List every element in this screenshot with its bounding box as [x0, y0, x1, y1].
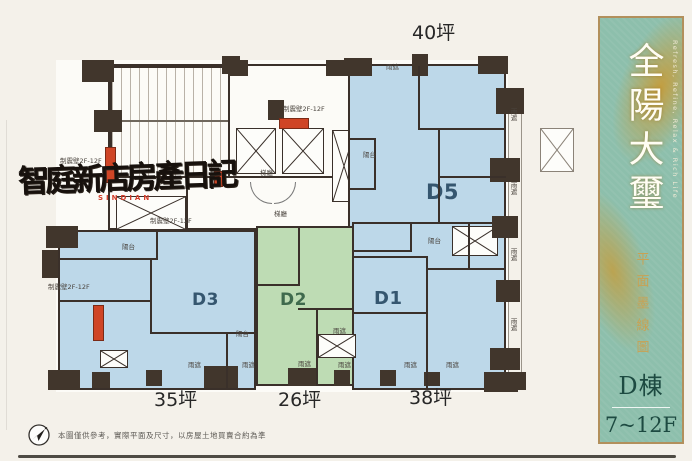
damper-wall-label: 制震壁2F-12F	[48, 284, 90, 291]
maintenance-platform	[540, 128, 574, 172]
partition-wall	[426, 256, 428, 388]
wall-column	[490, 348, 520, 370]
elevator-lobby-label: 梯廳	[260, 170, 273, 177]
rain-shade-label: 雨遮	[509, 318, 516, 331]
photo-edge	[6, 120, 7, 430]
wall-column	[334, 370, 350, 386]
footer: 本圖僅供參考，實際平面及尺寸，以房屋土地買賣合約為準	[28, 424, 266, 446]
wall-column	[42, 250, 58, 278]
unit-d5	[348, 64, 506, 236]
partition-wall	[298, 226, 300, 286]
unit-label-d5: D5	[426, 180, 459, 204]
partition-wall	[298, 308, 354, 310]
project-tagline-en: Refresh, Refine, Relax & Rich Life	[671, 40, 679, 199]
building-info: D棟 7~12F	[600, 366, 682, 437]
watermark-subtext: SINDIAN	[98, 194, 152, 202]
rain-shade-label: 雨遮	[404, 362, 417, 369]
partition-wall	[58, 300, 152, 302]
wall-column	[82, 60, 114, 82]
balcony-label: 陽台	[122, 244, 135, 251]
wall-column	[48, 370, 80, 390]
partition-wall	[374, 138, 376, 190]
project-banner: Refresh, Refine, Relax & Rich Life 全陽大璽 …	[598, 16, 684, 444]
wall-column	[288, 368, 316, 386]
partition-wall	[150, 258, 152, 334]
floor-plan: D5 D3 D2 D1 40坪 35坪 26坪 38坪 陽台陽台陽台陽台梯廳梯廳…	[0, 0, 692, 461]
wall-column	[478, 56, 508, 74]
wall-column	[228, 60, 248, 76]
wall-column	[204, 366, 238, 388]
wall-column	[46, 226, 78, 248]
project-title: 全陽大璽	[624, 42, 660, 218]
rain-shade-label: 雨遮	[509, 182, 516, 195]
rain-shade-label: 雨遮	[446, 362, 459, 369]
rain-shade-box	[318, 334, 356, 358]
wall-column	[344, 58, 372, 76]
partition-wall	[418, 66, 420, 130]
wall-column	[492, 216, 518, 238]
elevator-shaft	[282, 128, 324, 174]
wall-column	[490, 158, 520, 182]
partition-wall	[426, 268, 506, 270]
rain-shade-label: 雨遮	[509, 248, 516, 261]
photo-edge	[18, 455, 676, 458]
floors-label: 7~12F	[600, 413, 682, 437]
wall-column	[94, 110, 122, 132]
wall-column	[326, 60, 346, 76]
unit-label-d3: D3	[192, 290, 219, 310]
damper-wall	[94, 306, 103, 340]
partition-wall	[352, 250, 410, 252]
wall-column	[484, 372, 518, 392]
building-label: D棟	[600, 366, 682, 401]
balcony-label: 陽台	[363, 152, 376, 159]
area-label-35ping: 35坪	[154, 385, 197, 412]
partition-wall	[348, 138, 376, 140]
partition-wall	[316, 310, 318, 386]
wall-column	[496, 280, 520, 302]
partition-wall	[410, 222, 412, 252]
divider	[612, 407, 670, 408]
wall-column	[146, 370, 162, 386]
partition-wall	[352, 312, 426, 314]
partition-wall	[468, 222, 470, 268]
wall-column	[92, 372, 110, 388]
floorplan-page: D5 D3 D2 D1 40坪 35坪 26坪 38坪 陽台陽台陽台陽台梯廳梯廳…	[0, 0, 692, 461]
partition-wall	[256, 284, 300, 286]
rain-shade-box	[100, 350, 128, 368]
rain-shade-label: 雨遮	[242, 362, 255, 369]
wall-column	[412, 54, 428, 76]
damper-wall	[280, 119, 308, 128]
partition-wall	[348, 188, 376, 190]
unit-label-d2: D2	[280, 290, 307, 310]
area-label-26ping: 26坪	[278, 385, 321, 412]
wall-column	[380, 370, 396, 386]
balcony-label: 陽台	[236, 331, 249, 338]
area-label-38ping: 38坪	[409, 383, 452, 410]
wall-column	[268, 100, 284, 120]
unit-label-d1: D1	[374, 288, 402, 309]
damper-wall-label: 制震壁2F-12F	[283, 106, 325, 113]
rain-shade-label: 雨遮	[386, 64, 399, 71]
rain-shade-label: 雨遮	[188, 362, 201, 369]
rain-shade-strip	[521, 92, 522, 374]
elevator-lobby-label: 梯廳	[274, 211, 287, 218]
rain-shade-label: 雨遮	[298, 361, 311, 368]
area-label-40ping: 40坪	[412, 18, 455, 45]
rain-shade-label: 雨遮	[338, 362, 351, 369]
disclaimer-text: 本圖僅供參考，實際平面及尺寸，以房屋土地買賣合約為準	[58, 430, 266, 441]
balcony-label: 陽台	[428, 238, 441, 245]
rain-shade-label: 雨遮	[509, 108, 516, 121]
damper-wall-label: 制震壁2F-12F	[150, 218, 192, 225]
partition-wall	[156, 230, 158, 260]
partition-wall	[418, 128, 506, 130]
rain-shade-label: 雨遮	[333, 328, 346, 335]
partition-wall	[226, 332, 228, 390]
plan-type-label: 平面墨線圖	[632, 252, 651, 362]
partition-wall	[58, 258, 158, 260]
partition-wall	[352, 256, 426, 258]
partition-wall	[438, 176, 506, 178]
north-arrow-icon	[28, 424, 50, 446]
